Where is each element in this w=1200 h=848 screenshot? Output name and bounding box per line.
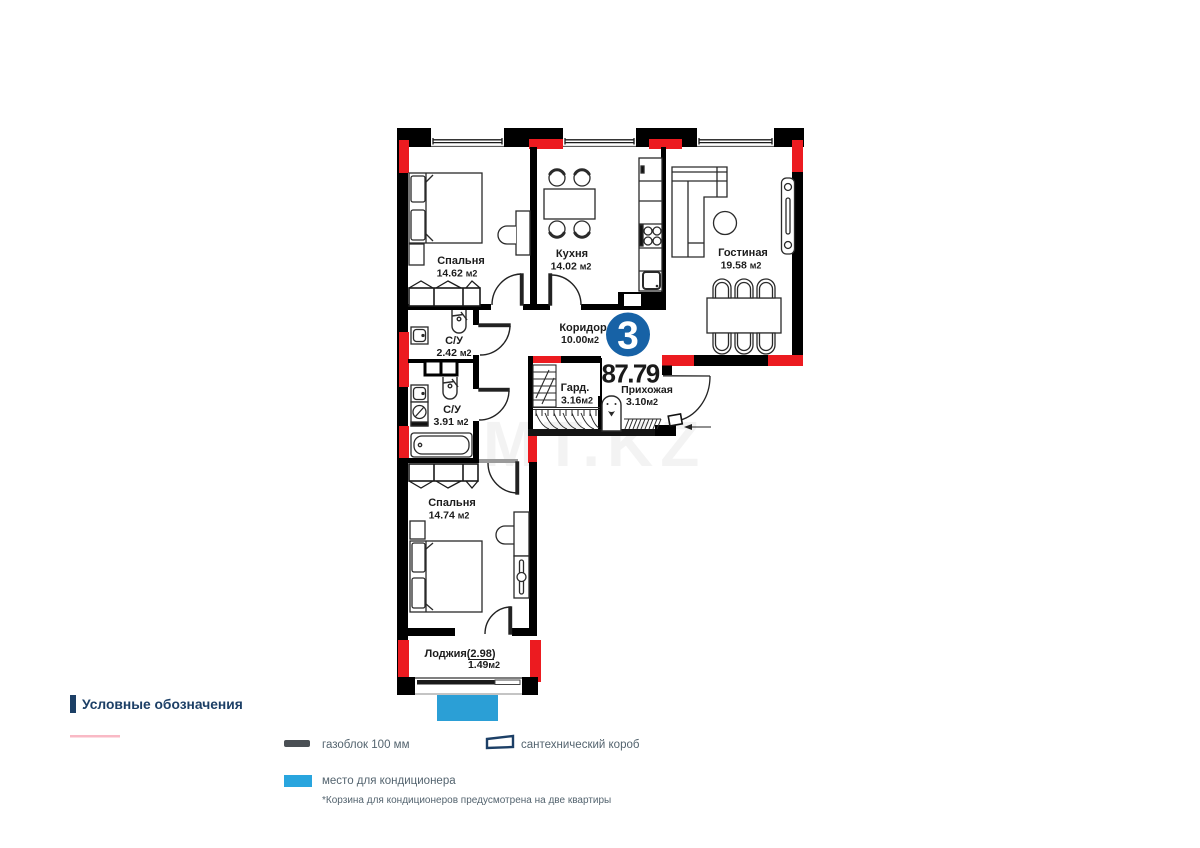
svg-text:газоблок 100 мм: газоблок 100 мм [322,739,410,751]
svg-text:Спальня: Спальня [428,497,476,509]
svg-text:14.74 м2: 14.74 м2 [429,510,470,522]
svg-text:место для кондиционера: место для кондиционера [322,775,456,787]
svg-text:Гард.: Гард. [561,382,590,394]
svg-text:19.58 м2: 19.58 м2 [721,260,762,272]
svg-text:Кухня: Кухня [556,248,588,260]
svg-text:3.16м2: 3.16м2 [561,395,593,407]
svg-text:3.10м2: 3.10м2 [626,396,658,408]
svg-text:С/У: С/У [445,335,463,347]
svg-text:10.00м2: 10.00м2 [561,334,599,346]
svg-text:2.42 м2: 2.42 м2 [436,347,471,359]
svg-text:Условные обозначения: Условные обозначения [82,697,243,712]
svg-text:С/У: С/У [443,404,461,416]
svg-text:*Корзина для кондиционеров пре: *Корзина для кондиционеров предусмотрена… [322,795,611,806]
svg-text:14.62 м2: 14.62 м2 [437,268,478,280]
svg-text:сантехнический короб: сантехнический короб [521,739,640,751]
svg-text:Гостиная: Гостиная [718,247,768,259]
svg-text:14.02 м2: 14.02 м2 [551,261,592,273]
svg-text:Коридор: Коридор [559,322,607,334]
svg-text:Прихожая: Прихожая [621,384,673,396]
svg-text:3.91 м2: 3.91 м2 [433,416,468,428]
svg-text:Спальня: Спальня [437,255,485,267]
svg-text:1.49м2: 1.49м2 [468,659,500,671]
svg-text:3: 3 [617,315,639,358]
